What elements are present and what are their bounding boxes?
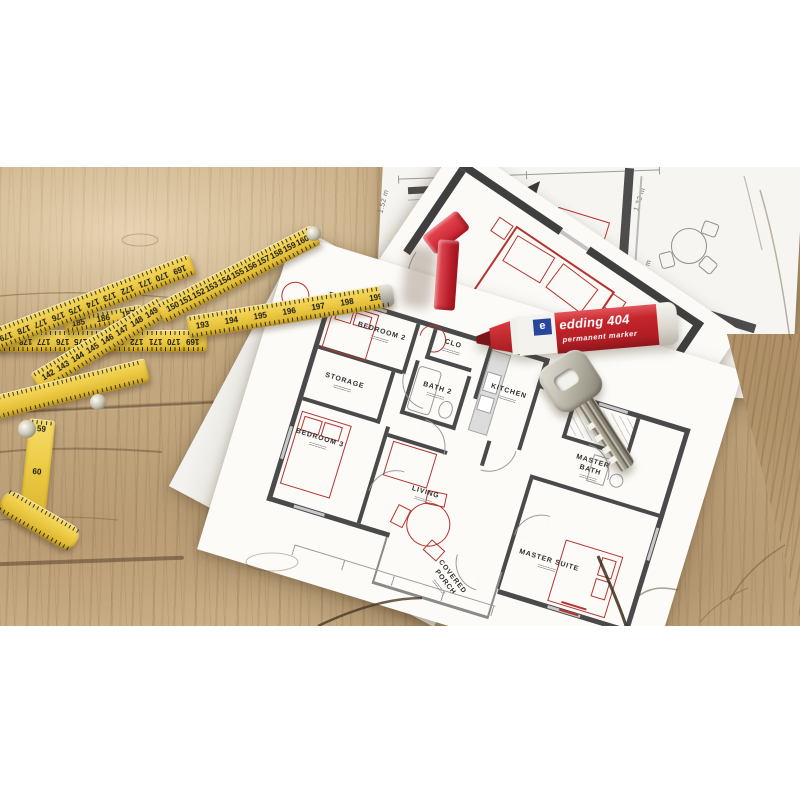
dimension-label: 3.00 m — [432, 160, 456, 168]
ruler-number: 150 — [165, 301, 181, 314]
ruler-number: 153 — [204, 281, 220, 294]
ruler-number: 170 — [154, 270, 169, 282]
ruler-number: 159 — [282, 241, 298, 254]
ruler-number: 170 — [167, 337, 180, 345]
photo-floorplan-scene: 3.00 m 1.52 m 1.52 m 1.32 m 3.53 m BEDRO… — [0, 0, 800, 800]
ruler-number: 195 — [253, 311, 267, 321]
ruler-number: 147 — [115, 324, 131, 338]
ruler-number: 60 — [32, 467, 42, 476]
ruler-number: 197 — [311, 302, 325, 312]
plank-gap — [0, 723, 130, 731]
photo-area: 3.00 m 1.52 m 1.52 m 1.32 m 3.53 m BEDRO… — [0, 0, 800, 800]
ruler-number: 171 — [137, 276, 152, 288]
ruler-number: 177 — [33, 316, 48, 328]
ruler-number: 178 — [15, 323, 30, 335]
ruler-number: 179 — [0, 330, 13, 342]
ruler-number: 193 — [195, 320, 209, 330]
ruler-number: 186 — [96, 314, 111, 324]
ruler-number: 174 — [85, 296, 100, 308]
ruler-rivet — [90, 394, 106, 410]
ruler-number: 198 — [340, 297, 354, 307]
dimension-label: 1.52 m — [562, 157, 586, 165]
ruler-number: 152 — [191, 288, 207, 301]
ruler-number: 173 — [102, 290, 117, 302]
ruler-number: 176 — [50, 310, 65, 322]
ruler-rivet — [306, 226, 321, 241]
ruler-number: 194 — [224, 316, 238, 326]
ruler-number: 151 — [178, 294, 194, 307]
ruler-number: 176 — [56, 337, 69, 345]
ruler-number: 158 — [269, 248, 285, 261]
ruler-number: 148 — [129, 315, 145, 329]
marker-nib — [476, 331, 492, 348]
ruler-number: 156 — [243, 261, 259, 274]
ruler-number: 154 — [217, 274, 233, 287]
marker-end-cap — [656, 301, 680, 346]
wood-grain-overlay — [0, 0, 800, 800]
ruler-number: 144 — [70, 351, 86, 365]
ruler-number: 145 — [85, 342, 101, 356]
ruler-number: 196 — [282, 306, 296, 316]
ruler-number: 146 — [100, 333, 116, 347]
ruler-number: 157 — [256, 254, 272, 267]
ruler-number: 175 — [67, 303, 82, 315]
ruler-number: 172 — [119, 283, 134, 295]
ruler-number: 177 — [37, 337, 50, 345]
ruler-number: 143 — [56, 360, 72, 374]
ruler-number: 59 — [37, 425, 47, 434]
ruler-number: 155 — [230, 268, 246, 281]
ruler-number: 171 — [149, 337, 162, 345]
ruler-rivet — [18, 420, 36, 438]
edding-logo-icon: e — [533, 318, 552, 336]
ruler-number: 169 — [171, 263, 186, 275]
